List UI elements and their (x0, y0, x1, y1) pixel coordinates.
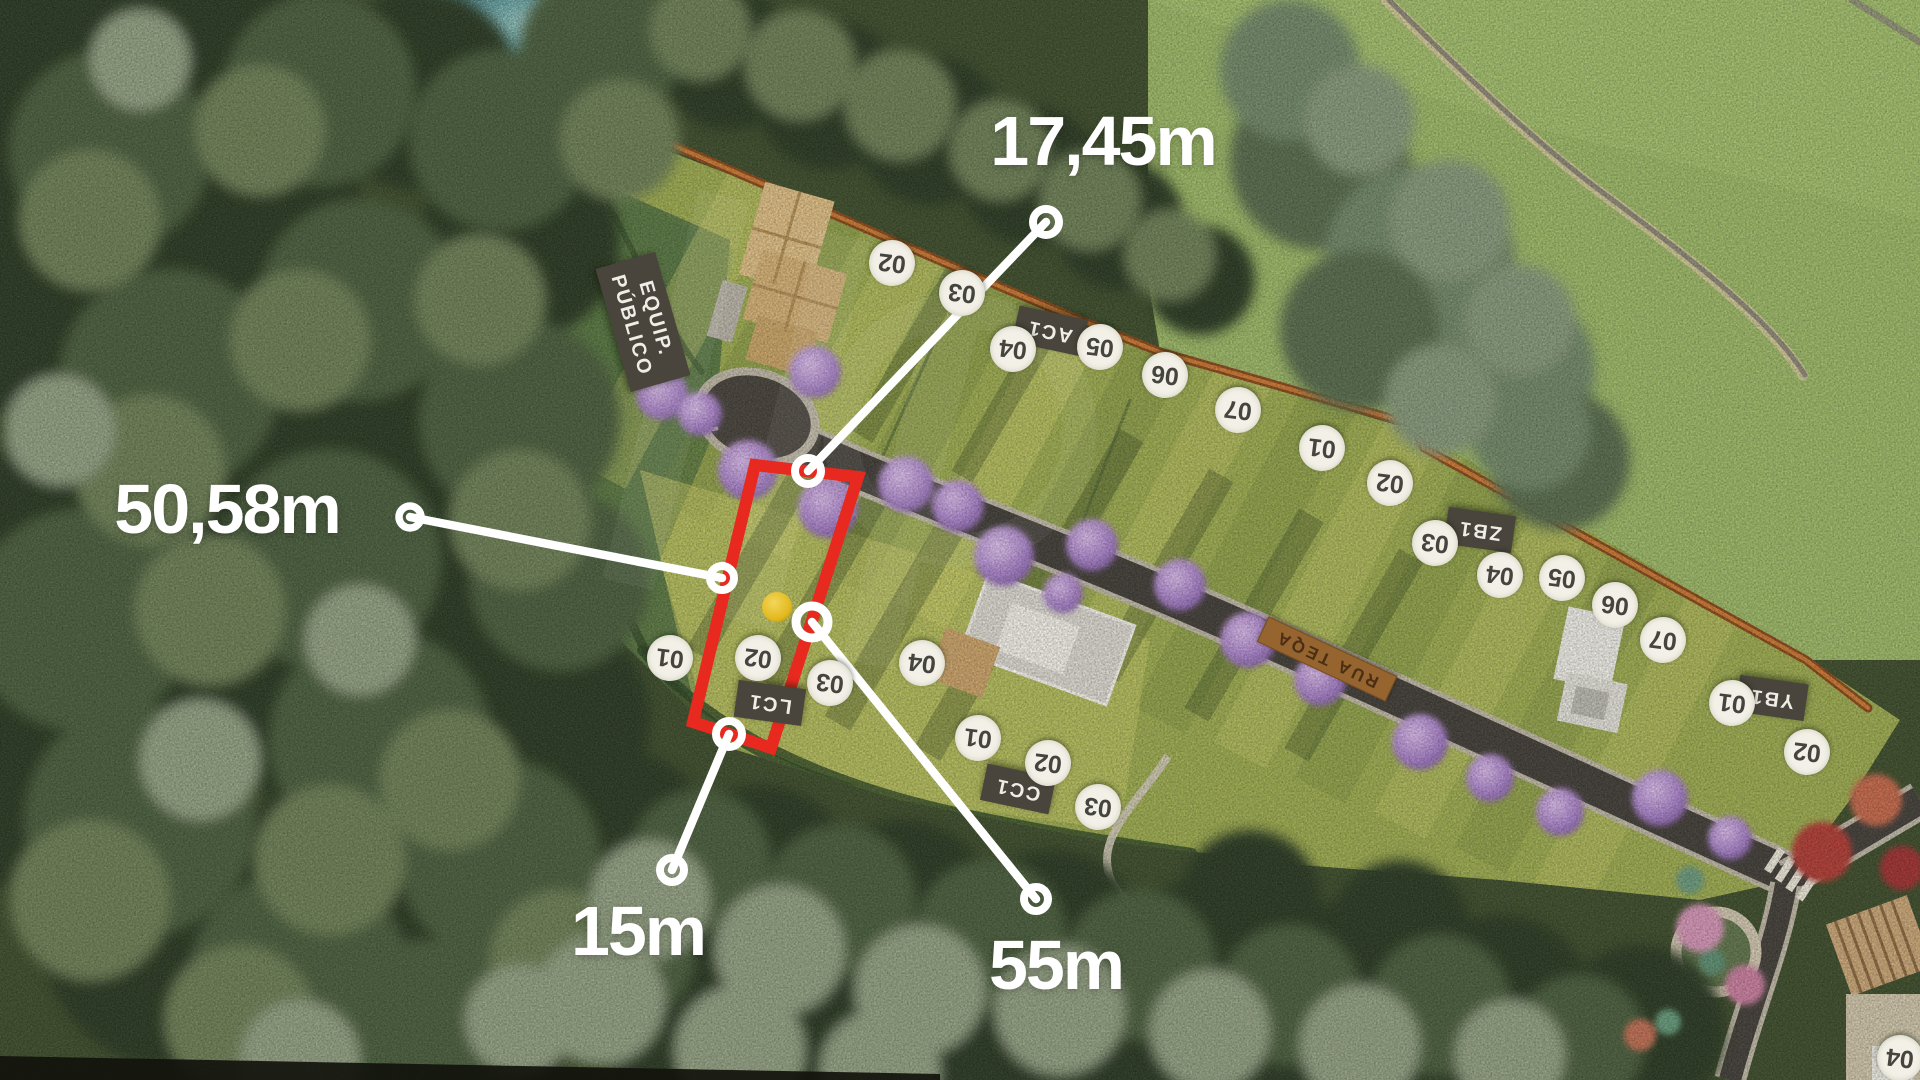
lot-number-badge: 02 (732, 632, 783, 683)
lot-number-badge: 05 (1536, 552, 1587, 603)
zone-sign: LC1 (734, 680, 806, 726)
lot-number-badge: 06 (1139, 349, 1190, 400)
lot-number-badge: 03 (936, 267, 987, 318)
zone-sign-label: LC1 (747, 688, 794, 719)
lot-number-badge: 01 (1296, 422, 1347, 473)
labels-layer: 17,45m 50,58m 15m 55m EQUIP.PÚBLICOAC1ZB… (0, 0, 1920, 1080)
zone-sign: EQUIP.PÚBLICO (596, 252, 691, 392)
lot-number-badge: 02 (1364, 457, 1415, 508)
lot-number-badge: 01 (644, 632, 695, 683)
measurement-label-left: 50,58m (114, 474, 339, 544)
lot-number-badge: 04 (1874, 1032, 1920, 1080)
lot-number-badge: 01 (952, 712, 1003, 763)
lot-number-badge: 03 (804, 657, 855, 708)
lot-number-badge: 03 (1072, 781, 1123, 832)
lot-number-badge: 06 (1589, 579, 1640, 630)
measurement-label-top: 17,45m (990, 106, 1215, 176)
measurement-label-bottom-left: 15m (571, 896, 705, 966)
lot-number-badge: 04 (896, 637, 947, 688)
zone-sign-label: ZB1 (1457, 515, 1504, 546)
street-name-sign: RUA TEQA (1257, 616, 1398, 701)
lot-number-badge: 02 (866, 237, 917, 288)
lot-number-badge: 07 (1212, 384, 1263, 435)
lot-number-badge: 07 (1637, 614, 1688, 665)
zone-sign-label: YB1 (1748, 682, 1796, 713)
measurement-label-bottom: 55m (989, 930, 1123, 1000)
site-plan-photo: 17,45m 50,58m 15m 55m EQUIP.PÚBLICOAC1ZB… (0, 0, 1920, 1080)
lot-number-badge: 04 (1474, 549, 1525, 600)
lot-number-badge: 02 (1781, 726, 1832, 777)
